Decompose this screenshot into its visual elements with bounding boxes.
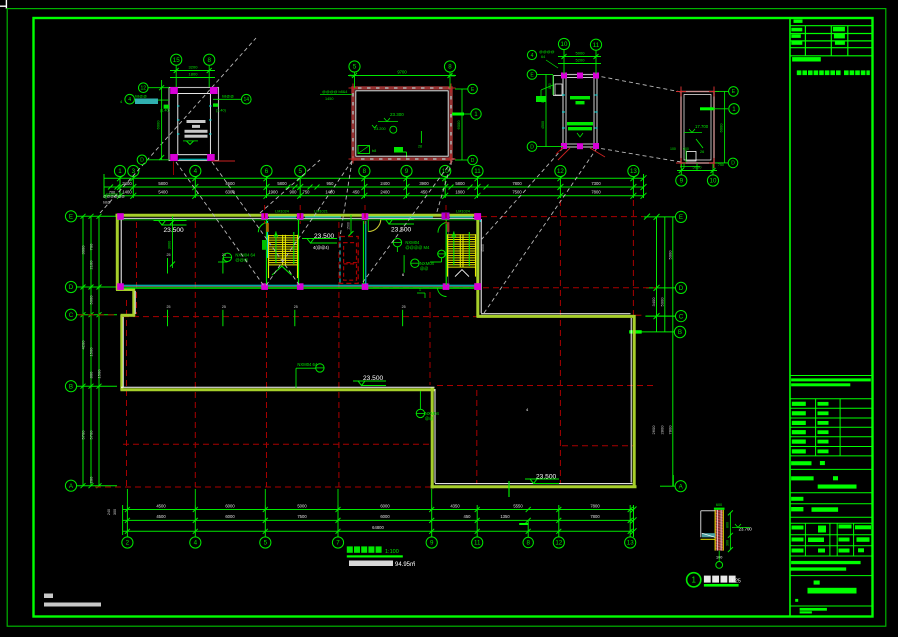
svg-text:2: 2 [126, 540, 130, 547]
svg-text:800: 800 [88, 371, 93, 378]
svg-text:9700: 9700 [397, 70, 407, 75]
svg-text:12: 12 [141, 86, 147, 92]
svg-text:7: 7 [336, 540, 340, 547]
svg-text:5: 5 [264, 540, 268, 547]
svg-text:450: 450 [421, 190, 429, 195]
svg-text:1800: 1800 [455, 190, 465, 195]
svg-text:D: D [140, 158, 144, 164]
svg-text:1800: 1800 [189, 72, 199, 77]
svg-text:D: D [471, 158, 475, 164]
svg-text:5800: 5800 [158, 181, 168, 186]
svg-text:10: 10 [561, 41, 568, 48]
svg-text:5700: 5700 [80, 430, 85, 440]
svg-text:11: 11 [593, 42, 600, 49]
svg-text:700: 700 [449, 74, 455, 78]
svg-text:12: 12 [555, 540, 562, 547]
svg-text:4: 4 [194, 168, 198, 175]
svg-text:1:25: 1:25 [731, 579, 741, 585]
svg-text:700: 700 [349, 74, 355, 78]
svg-text:8: 8 [207, 57, 211, 64]
svg-text:6000: 6000 [719, 123, 724, 133]
svg-text:4500: 4500 [156, 503, 166, 508]
svg-text:D: D [530, 144, 534, 150]
svg-text:B: B [678, 329, 682, 336]
svg-text:28: 28 [418, 145, 422, 149]
svg-text:23.300: 23.300 [390, 112, 404, 117]
svg-text:C: C [69, 312, 74, 319]
svg-text:@@@@ M4: @@@@ M4 [405, 245, 430, 250]
svg-text:1350: 1350 [500, 514, 510, 519]
svg-text:11: 11 [474, 168, 481, 175]
svg-text:7300: 7300 [591, 181, 601, 186]
svg-text:100: 100 [670, 147, 676, 151]
svg-text:800: 800 [541, 97, 545, 103]
svg-text:25: 25 [222, 305, 226, 309]
svg-text:13: 13 [627, 540, 634, 547]
svg-text:25: 25 [402, 305, 406, 309]
svg-text:7800: 7800 [590, 514, 600, 519]
svg-text:300: 300 [113, 509, 117, 515]
svg-text:5700: 5700 [88, 430, 93, 440]
svg-text:4600: 4600 [225, 181, 235, 186]
svg-text:b8@@: b8@@ [222, 95, 234, 99]
svg-text:750: 750 [718, 163, 724, 167]
svg-text:3200: 3200 [189, 65, 199, 70]
svg-text:25: 25 [167, 305, 171, 309]
svg-text:600: 600 [716, 503, 722, 507]
svg-text:6000: 6000 [225, 514, 235, 519]
svg-text:750: 750 [303, 190, 311, 195]
svg-text:800: 800 [726, 522, 730, 528]
svg-text:6000: 6000 [225, 503, 235, 508]
svg-text:D: D [679, 285, 684, 292]
svg-text:5800: 5800 [455, 181, 465, 186]
svg-text:1: 1 [419, 288, 421, 292]
svg-text:b8: b8 [372, 149, 376, 153]
svg-text:1500: 1500 [88, 347, 93, 357]
svg-text:15: 15 [173, 57, 180, 64]
svg-text:@@@: @@@ [235, 258, 248, 263]
svg-text:LM1024: LM1024 [275, 210, 289, 214]
svg-text:7800: 7800 [591, 190, 601, 195]
svg-text:3400: 3400 [651, 297, 656, 307]
svg-text:6000: 6000 [380, 514, 390, 519]
svg-text:450: 450 [464, 514, 472, 519]
svg-text:240: 240 [107, 509, 111, 515]
svg-text:6000: 6000 [380, 503, 390, 508]
svg-text:23.500: 23.500 [164, 227, 185, 234]
svg-text:9: 9 [430, 540, 434, 547]
svg-text:1500: 1500 [347, 222, 351, 230]
svg-text:6000: 6000 [456, 120, 461, 130]
svg-text:14: 14 [244, 97, 250, 103]
svg-text:700: 700 [88, 243, 93, 250]
svg-text:@@: @@ [420, 266, 429, 271]
svg-text:B: B [69, 383, 73, 390]
svg-text:7800: 7800 [512, 181, 522, 186]
svg-text:4350: 4350 [450, 503, 460, 508]
svg-text:6: 6 [265, 168, 269, 175]
svg-text:5800: 5800 [277, 181, 287, 186]
svg-text:25: 25 [294, 305, 298, 309]
svg-text:900: 900 [290, 190, 298, 195]
svg-text:12: 12 [557, 168, 564, 175]
svg-text:10: 10 [710, 178, 717, 185]
svg-text:26: 26 [700, 150, 704, 154]
svg-text:b8@: b8@ [103, 201, 111, 205]
svg-text:2800: 2800 [660, 425, 665, 435]
svg-text:23.200: 23.200 [374, 127, 386, 131]
svg-text:5000: 5000 [576, 51, 586, 56]
svg-text:1:100: 1:100 [385, 549, 399, 555]
svg-text:7500: 7500 [297, 514, 307, 519]
svg-text:3000: 3000 [168, 241, 172, 249]
svg-text:1: 1 [474, 111, 478, 118]
svg-text:8: 8 [363, 168, 367, 175]
svg-text:5550: 5550 [513, 503, 523, 508]
svg-text:E: E [69, 214, 73, 221]
svg-text:300: 300 [726, 540, 730, 546]
svg-text:C: C [679, 313, 684, 320]
svg-text:5: 5 [298, 168, 302, 175]
svg-text:25: 25 [167, 253, 171, 257]
svg-text:5000: 5000 [660, 297, 665, 307]
svg-text:13: 13 [630, 168, 637, 175]
svg-text:5000: 5000 [88, 295, 93, 305]
svg-text:D: D [731, 161, 735, 167]
svg-text:3000: 3000 [80, 245, 85, 255]
svg-text:2: 2 [413, 561, 415, 565]
svg-text:4(@@4): 4(@@4) [313, 245, 330, 250]
svg-text:(1.40): (1.40) [216, 109, 227, 113]
svg-text:950: 950 [327, 181, 335, 186]
svg-text:7800: 7800 [668, 425, 673, 435]
svg-text:8: 8 [448, 64, 452, 71]
svg-text:8: 8 [526, 540, 530, 547]
svg-text:5200: 5200 [576, 58, 586, 63]
svg-text:5000: 5000 [693, 165, 703, 170]
svg-text:800: 800 [548, 83, 552, 89]
svg-text:3900: 3900 [419, 181, 429, 186]
svg-text:450: 450 [353, 190, 361, 195]
svg-text:7500: 7500 [512, 190, 522, 195]
svg-text:3400: 3400 [122, 181, 132, 186]
svg-text:LM1024: LM1024 [456, 210, 470, 214]
svg-text:7800: 7800 [590, 503, 600, 508]
svg-text:E: E [679, 214, 683, 221]
svg-text:NXM04 64: NXM04 64 [297, 362, 317, 367]
svg-text:5: 5 [353, 64, 357, 71]
svg-text:2400: 2400 [380, 181, 390, 186]
svg-text:5000: 5000 [297, 503, 307, 508]
svg-text:1: 1 [732, 106, 736, 113]
svg-text:9: 9 [680, 178, 684, 185]
svg-text:b8@@: b8@@ [135, 95, 147, 99]
svg-text:94.95m: 94.95m [395, 562, 415, 568]
svg-text:LM1021: LM1021 [314, 210, 328, 214]
svg-text:17.700: 17.700 [695, 124, 709, 129]
svg-text:2100: 2100 [88, 260, 93, 270]
svg-text:4: 4 [531, 53, 534, 59]
svg-text:4: 4 [128, 97, 131, 103]
svg-text:1: 1 [118, 168, 122, 175]
svg-text:64: 64 [541, 55, 545, 59]
svg-text:2400: 2400 [380, 190, 390, 195]
svg-text:@@@@: @@@@ [539, 50, 555, 54]
svg-text:11: 11 [474, 540, 481, 547]
svg-text:200: 200 [88, 476, 93, 483]
svg-text:6000: 6000 [156, 120, 161, 130]
svg-text:1500: 1500 [96, 369, 101, 379]
svg-text:4500: 4500 [481, 244, 485, 252]
svg-text:D: D [69, 284, 74, 291]
svg-text:5000: 5000 [668, 250, 673, 260]
svg-text:1900: 1900 [268, 190, 278, 195]
svg-text:4500: 4500 [156, 514, 166, 519]
svg-text:9: 9 [405, 168, 409, 175]
svg-text:@@: @@ [425, 416, 434, 421]
svg-text:1: 1 [691, 576, 696, 585]
svg-text:1450: 1450 [325, 97, 333, 101]
svg-text:5400: 5400 [158, 190, 168, 195]
svg-text:4: 4 [194, 540, 198, 547]
svg-text:@@@@ b8&4: @@@@ b8&4 [322, 90, 347, 94]
svg-text:64800: 64800 [372, 525, 384, 530]
svg-text:4500: 4500 [541, 121, 545, 129]
svg-text:2600: 2600 [651, 425, 656, 435]
svg-text:4200: 4200 [80, 340, 85, 350]
